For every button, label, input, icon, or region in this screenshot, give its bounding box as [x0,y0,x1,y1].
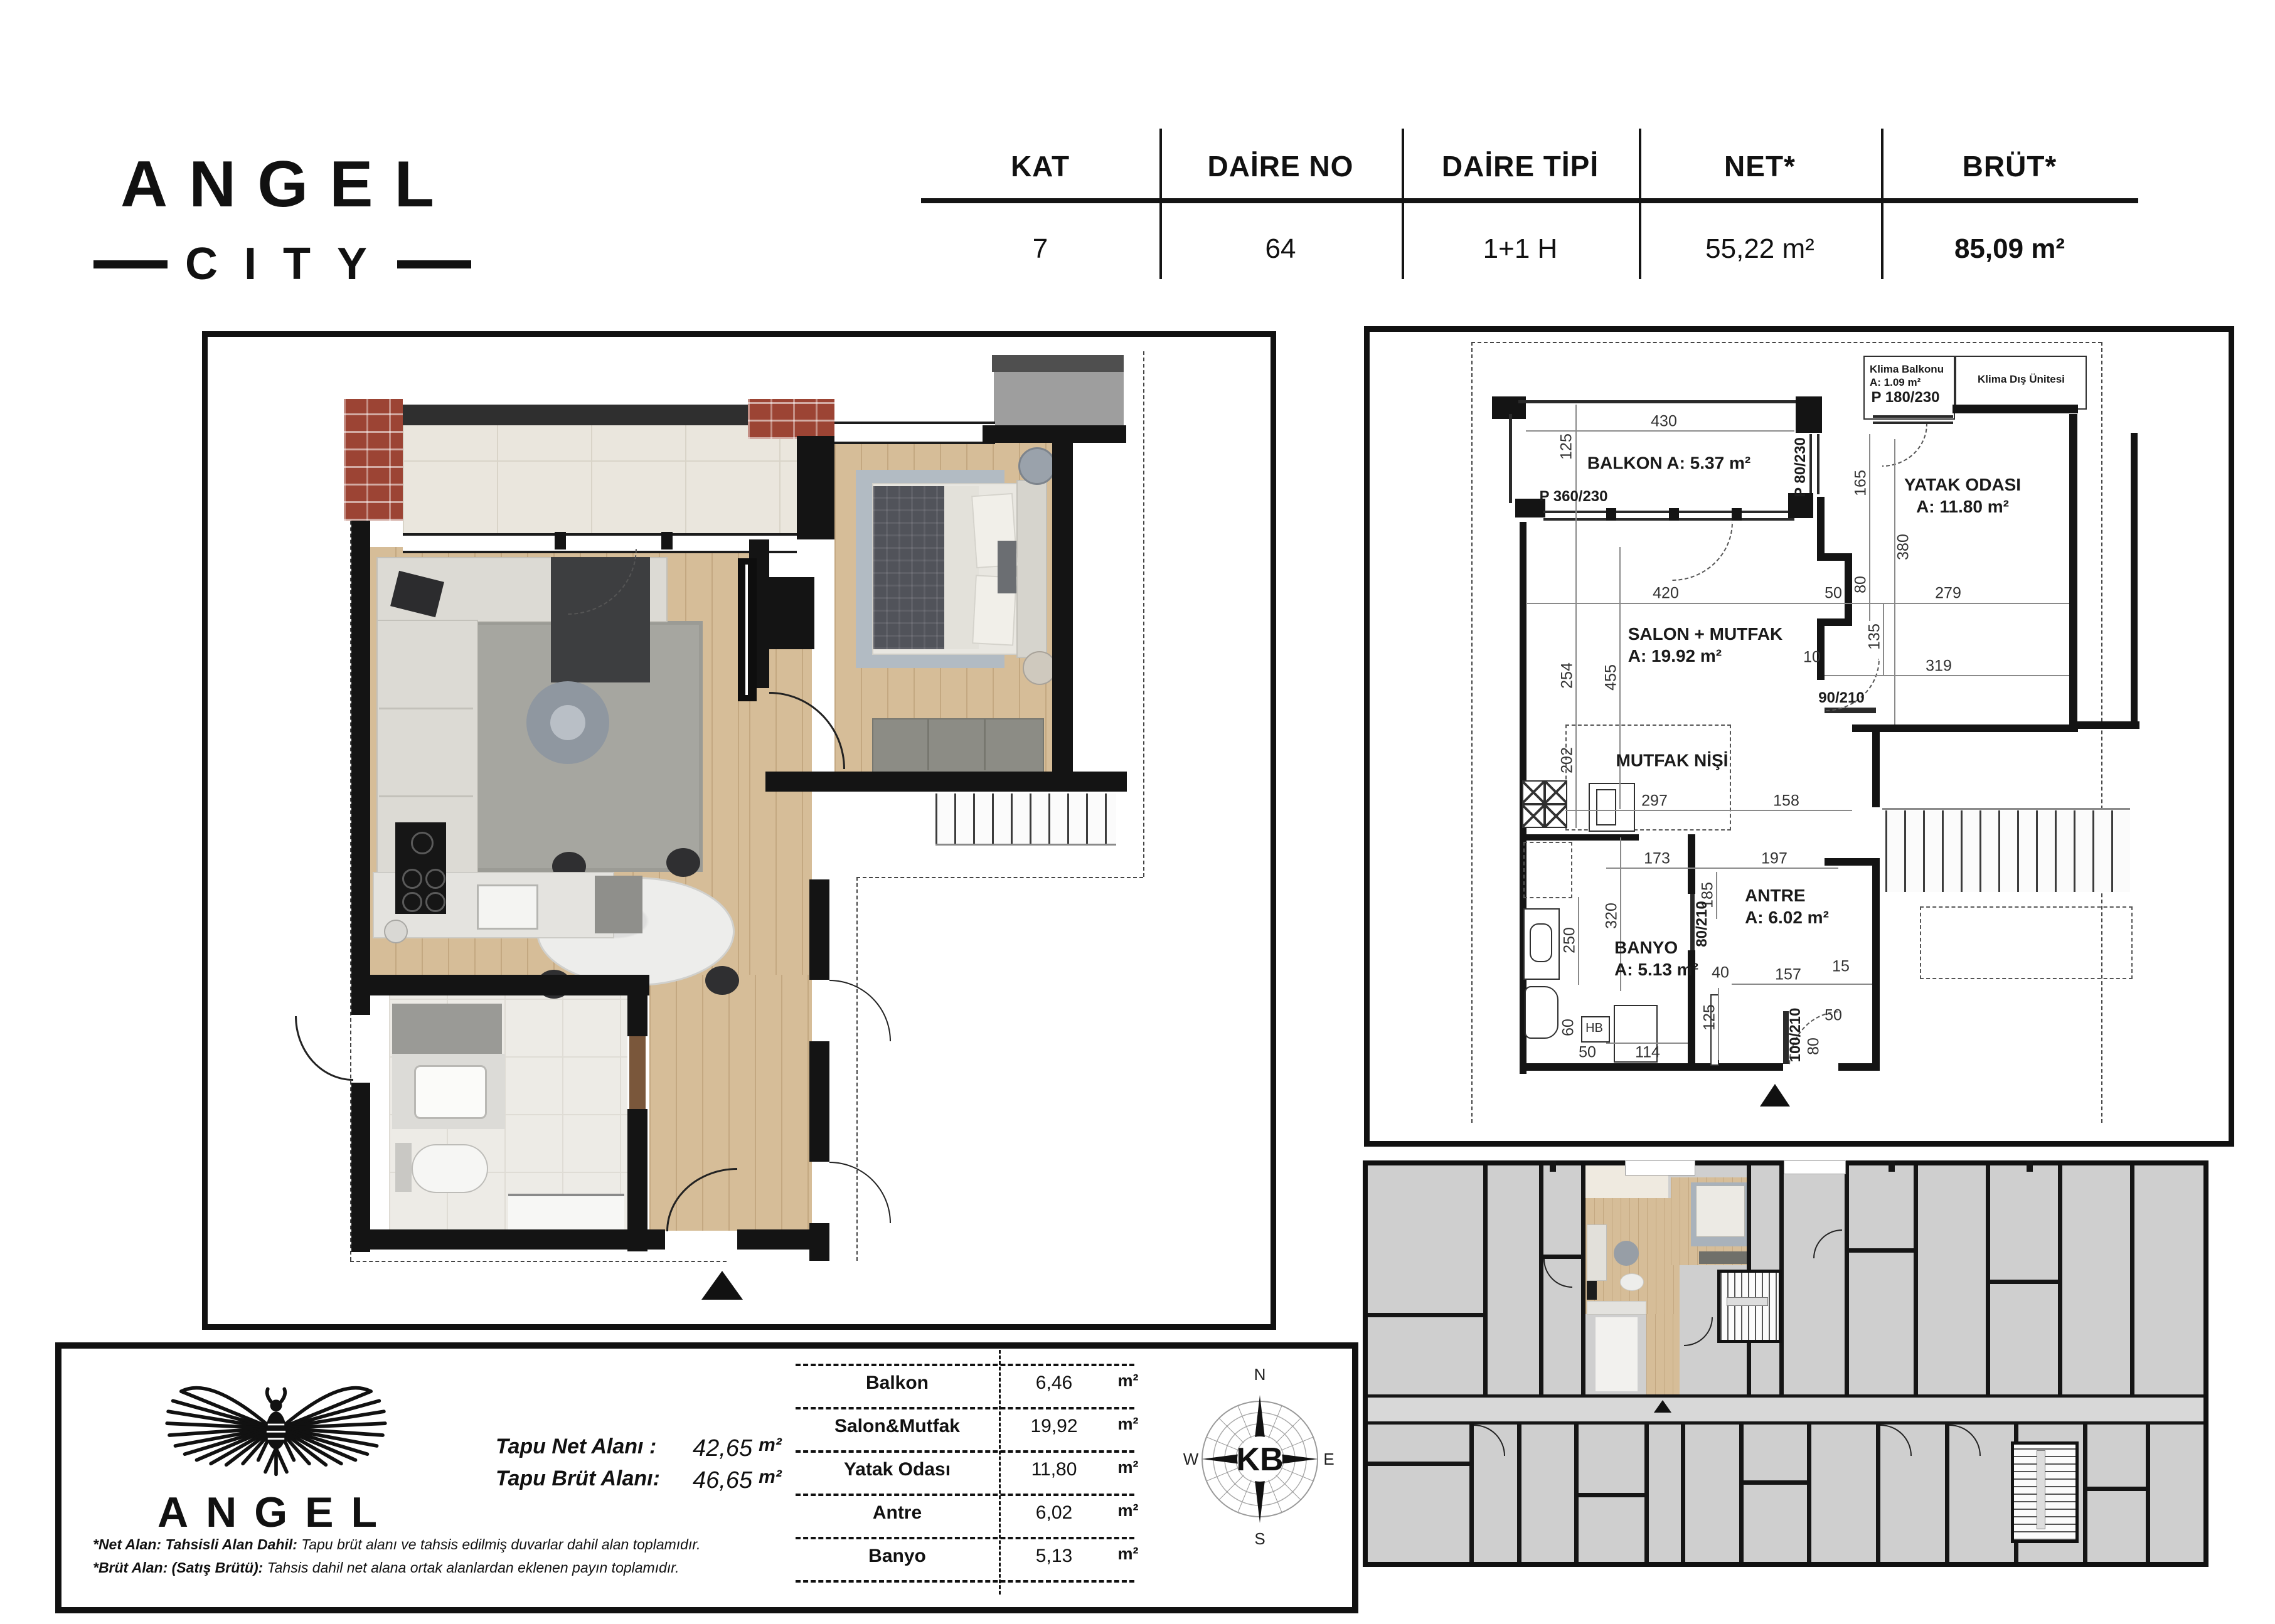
t-void [1920,906,2133,979]
key-unit-rug [1614,1241,1639,1266]
key-unit-counter [1587,1301,1646,1315]
dim-line [1894,439,1895,724]
t-parapet [1509,414,1512,503]
t-wall [2077,721,2139,729]
footnote-text: Tahsis dahil net alana ortak alanlardan … [263,1559,679,1576]
balcony-floor [403,425,797,536]
dim-label: 202 [1560,747,1575,773]
room-label-banyo: BANYO A: 5.13 m² [1614,937,1698,980]
stairs [935,793,1116,844]
tapu-brut-unit: m² [759,1465,782,1497]
sofa-seam [379,795,473,797]
key-wall [1845,1248,1918,1253]
wardrobe-divider [984,719,986,770]
header-col-daire-tipi: DAİRE TİPİ [1408,149,1633,183]
table-separator [796,1364,1134,1366]
t-wall [1688,834,1695,894]
shaft [769,577,814,649]
toilet-tank [395,1143,412,1192]
table-separator [796,1580,1134,1583]
footnote-text: Tapu brüt alanı ve tahsis edilmiş duvarl… [297,1536,701,1552]
dim-label: 125 [1702,1004,1718,1031]
room-label-mutfak-nisi: MUTFAK NİŞİ [1616,750,1729,772]
key-wall [2083,1487,2150,1491]
t-wall [1817,553,1852,561]
door-label: P 80/230 [1792,437,1809,497]
tapu-brut-value: 46,65 [693,1465,752,1497]
bedside-decor [1023,651,1057,685]
key-wall [1368,1462,1474,1466]
header-val-daire-tipi: 1+1 H [1408,233,1633,265]
dim-label: 114 [1635,1045,1660,1061]
room-label-yatak: YATAK ODASI A: 11.80 m² [1904,474,2021,517]
door-label: 100/210 [1787,1008,1804,1063]
key-wall [1739,1480,1811,1485]
entrance-marker [701,1271,743,1300]
key-unit-sofa [1587,1224,1607,1281]
tapu-net-value: 42,65 [693,1433,752,1465]
wall-corridor-right [809,879,829,980]
logo-word-angel: ANGEL [99,147,477,222]
key-wall [2146,1421,2150,1562]
dim-label: 50 [1579,1045,1596,1061]
key-balcony-notch [1784,1160,1846,1174]
table-separator [796,1407,1134,1409]
balcony-parapet [403,405,748,425]
wall-left [351,521,370,1015]
footnote-lead: *Brüt Alan: (Satış Brütü): [93,1559,263,1576]
key-entrance-marker [1654,1400,1671,1413]
dim-label: 15 [1832,959,1850,975]
key-wall [1739,1421,1744,1562]
dim-line [1526,603,2069,604]
header-val-brut: 85,09 m² [1887,233,2132,265]
logo-dash-right [397,260,471,268]
angel-logo-text: ANGEL [107,1488,445,1537]
key-wall [1368,1394,2203,1398]
bed-cushion [998,541,1016,593]
key-wall [1581,1165,1585,1394]
t-sink-basin [1596,789,1616,825]
key-stub [1889,1160,1895,1172]
key-wall [1574,1493,1649,1497]
dim-line [1526,430,1794,432]
key-wall [1876,1421,1880,1562]
footnote-lead: *Net Alan: Tahsisli Alan Dahil: [93,1536,297,1552]
key-wall [1807,1421,1811,1562]
area-row-name: Banyo [796,1546,999,1567]
table-separator [796,1494,1134,1496]
room-label-salon: SALON + MUTFAK A: 19.92 m² [1628,623,1783,667]
key-wall [2083,1421,2087,1562]
logo-word-city-row: CITY [88,238,477,290]
t-burner [1545,780,1567,804]
area-row-value: 6,46 [999,1372,1109,1394]
t-burner [1545,804,1567,828]
area-row-value: 5,13 [999,1546,1109,1567]
stove-burner [411,832,434,854]
table-separator [796,1537,1134,1539]
wardrobe-divider [927,719,929,770]
brick-column [344,399,403,521]
key-wall [1469,1421,1474,1562]
stove-burner [402,892,422,912]
wall-corridor-right [809,1041,829,1162]
t-shower [1523,842,1572,898]
t-mullion [1732,508,1742,521]
tech-lot-line [2101,342,2102,1123]
t-mullion [1669,508,1679,521]
dim-label: 10 [1803,650,1821,666]
key-wall [1914,1165,1918,1394]
key-unit-stove [1587,1281,1597,1300]
area-row-name: Antre [796,1502,999,1524]
compass-rose: KB N S E W [1178,1360,1341,1548]
tech-lot-line [1471,342,1473,1123]
tapu-net-unit: m² [759,1433,782,1465]
t-wall [1845,561,1852,624]
bath-sink [414,1065,487,1119]
bed-blanket [873,486,944,649]
window-mullion [661,532,673,549]
dim-label: 254 [1560,662,1575,689]
logo-dash-left [93,260,168,268]
stairs-edge [935,844,1116,846]
key-unit-wardrobe [1699,1251,1747,1264]
stove-burner [425,869,445,889]
key-wall [1483,1165,1488,1394]
compass-n: N [1254,1365,1266,1384]
coffee-table-inner [550,705,585,740]
room-label-balkon: BALKON A: 5.37 m² [1587,452,1750,474]
lot-line [350,1261,727,1262]
t-mullion [1606,508,1616,521]
door-label: P 180/230 [1872,389,1940,406]
lot-line [1143,351,1144,877]
t-wall [2069,414,2077,728]
dim-label: 60 [1561,1019,1577,1036]
dim-label: 135 [1867,624,1883,650]
bath-door-leaf [629,1029,646,1109]
wall-kitchen-bottom [351,975,649,995]
wall [797,436,834,539]
window-mullion [555,532,566,549]
key-balcony-notch [1625,1160,1695,1176]
key-unit-table [1620,1273,1644,1291]
compass-kb: KB [1236,1441,1283,1478]
plan-sheet: ANGEL CITY KAT DAİRE NO DAİRE TİPİ NET* … [0,0,2275,1624]
table-separator [796,1450,1134,1453]
stove-burner [425,892,445,912]
key-wall [1681,1421,1685,1562]
dim-label: 50 [1825,1008,1842,1024]
t-burner [1522,780,1545,804]
dim-line [1606,868,1838,869]
angel-eagle-logo [107,1371,445,1478]
dim-label: 50 [1825,586,1842,602]
t-wall [1520,1063,1783,1071]
t-window [1873,415,1953,418]
header-divider [1402,129,1404,279]
dim-label: 80 [1853,576,1869,593]
area-row-unit: m² [1109,1501,1147,1521]
key-stub [2027,1160,2033,1172]
compass-w: W [1183,1450,1199,1468]
dim-label: 157 [1775,967,1801,983]
tapu-brut-label: Tapu Brüt Alanı: [496,1465,684,1497]
key-unit-corridor [1646,1314,1680,1394]
tech-lot-line [1471,342,2102,343]
wall-left [351,1083,370,1252]
t-stairs [1885,810,2130,892]
t-bath-basin [1530,923,1552,962]
kitchen-item [384,920,408,943]
t-wall [1872,866,1880,1071]
sofa-seam [379,708,473,709]
header-divider [1639,129,1641,279]
key-wall [1368,1313,1483,1317]
t-parapet [1518,400,1808,403]
wall-corridor-right [809,1223,829,1261]
dining-chair [705,966,739,995]
dining-chair [666,848,700,877]
table-centerline [999,1350,1001,1595]
wall-bedroom-right [1052,439,1073,781]
header-col-daire-no: DAİRE NO [1166,149,1395,183]
compass-e: E [1323,1450,1334,1468]
key-wall [1845,1165,1849,1394]
tapu-block: Tapu Net Alanı : 42,65 m² Tapu Brüt Alan… [496,1433,782,1497]
stove-burner [402,869,422,889]
t-toilet [1525,986,1558,1039]
key-stub [1550,1160,1556,1172]
area-row-name: Balkon [796,1372,999,1394]
key-wall [2130,1165,2134,1394]
key-stairs-rail [1727,1297,1768,1306]
bedside-decor [1018,447,1056,485]
key-wall [1539,1165,1543,1394]
area-row-value: 11,80 [999,1459,1109,1480]
footnotes: *Net Alan: Tahsisli Alan Dahil: Tapu brü… [93,1533,701,1579]
door-label: 90/210 [1818,689,1864,707]
dim-label: 319 [1926,659,1952,674]
dim-label: 320 [1604,903,1620,929]
wardrobe [872,718,1044,774]
key-stairs [1717,1270,1782,1343]
key-stairs-rail [2037,1450,2045,1529]
bath-cabinet [392,1004,502,1054]
header-val-daire-no: 64 [1166,233,1395,265]
key-wall [1986,1280,2062,1284]
t-stairs-edge [1882,808,2130,810]
key-wall [1945,1421,1949,1562]
wall-bath-right [627,979,647,1036]
header-val-kat: 7 [927,233,1153,265]
dim-label: 420 [1653,586,1679,602]
compass-s: S [1254,1529,1265,1548]
area-row-name: Yatak Odası [796,1459,999,1480]
dim-label: 250 [1562,927,1578,953]
dim-label: 430 [1651,414,1677,430]
t-burner [1522,804,1545,828]
room-label-antre: ANTRE A: 6.02 m² [1745,884,1829,928]
dim-label: 455 [1604,664,1619,691]
key-wall [1517,1421,1521,1562]
bedroom-window [834,422,995,444]
dim-label: 297 [1641,793,1668,809]
toilet [412,1144,488,1193]
kitchen-appliance [595,876,642,933]
t-wall [1817,497,1825,560]
area-row-unit: m² [1109,1458,1147,1477]
header-col-brut: BRÜT* [1887,149,2132,183]
dim-line [1565,810,1852,811]
area-row-unit: m² [1109,1544,1147,1564]
ac-balcony-edge [992,355,1124,372]
lot-line [856,877,1143,878]
key-unit-bath [1596,1317,1638,1391]
bed-headboard [1016,480,1047,658]
header-col-kat: KAT [927,149,1153,183]
tech-entrance-marker [1760,1084,1790,1107]
t-wall [1872,732,1880,807]
area-row-unit: m² [1109,1371,1147,1391]
t-wall [1817,618,1852,626]
dim-line [1825,675,2069,676]
key-corridor [1368,1398,2203,1421]
key-wall [1644,1421,1649,1562]
header-col-net: NET* [1645,149,1875,183]
t-wall [1825,858,1880,866]
dim-label: 173 [1644,851,1670,867]
kitchen-sink [477,884,538,930]
brick-wall [748,399,834,439]
t-wall [2131,433,2138,721]
room-label-klima-balkonu: Klima Balkonu A: 1.09 m² [1870,363,1944,390]
logo-word-city: CITY [185,238,393,290]
header-divider [1881,129,1883,279]
area-row-name: Salon&Mutfak [796,1416,999,1437]
tapu-net-label: Tapu Net Alanı : [496,1433,684,1465]
tv-screen-line [745,565,748,695]
shower-floor [508,1196,624,1231]
header-underline [921,198,2138,203]
area-row-value: 19,92 [999,1416,1109,1437]
wall-bottom [351,1229,665,1250]
door-label: P 360/230 [1540,488,1608,506]
dim-label: 80 [1806,1038,1822,1055]
t-wall [1953,405,2078,413]
dim-label: 40 [1712,965,1729,981]
dim-label: 165 [1853,470,1869,496]
t-wall [1796,396,1822,433]
key-wall [1539,1255,1585,1259]
t-wall [1852,724,2078,732]
key-wall [1368,1421,2203,1425]
dim-label: 279 [1935,586,1961,602]
dim-label: HB [1585,1022,1603,1034]
area-row-value: 6,02 [999,1502,1109,1524]
key-plan [1363,1160,2208,1567]
header-val-net: 55,22 m² [1645,233,1875,265]
header-divider [1159,129,1162,279]
t-window [1809,434,1812,494]
angel-city-logo: ANGEL CITY [88,147,477,290]
dim-label: 125 [1559,433,1575,460]
area-row-unit: m² [1109,1414,1147,1434]
dim-label: 158 [1773,793,1799,809]
dim-line [1732,984,1872,985]
key-wall [1574,1421,1579,1562]
room-label-klima-dis: Klima Dış Ünitesi [1978,373,2065,386]
dim-label: 380 [1896,534,1912,560]
ac-balcony [994,372,1124,427]
t-window [1817,434,1819,494]
dim-label: 197 [1761,851,1787,867]
key-unit-bed [1696,1186,1745,1237]
